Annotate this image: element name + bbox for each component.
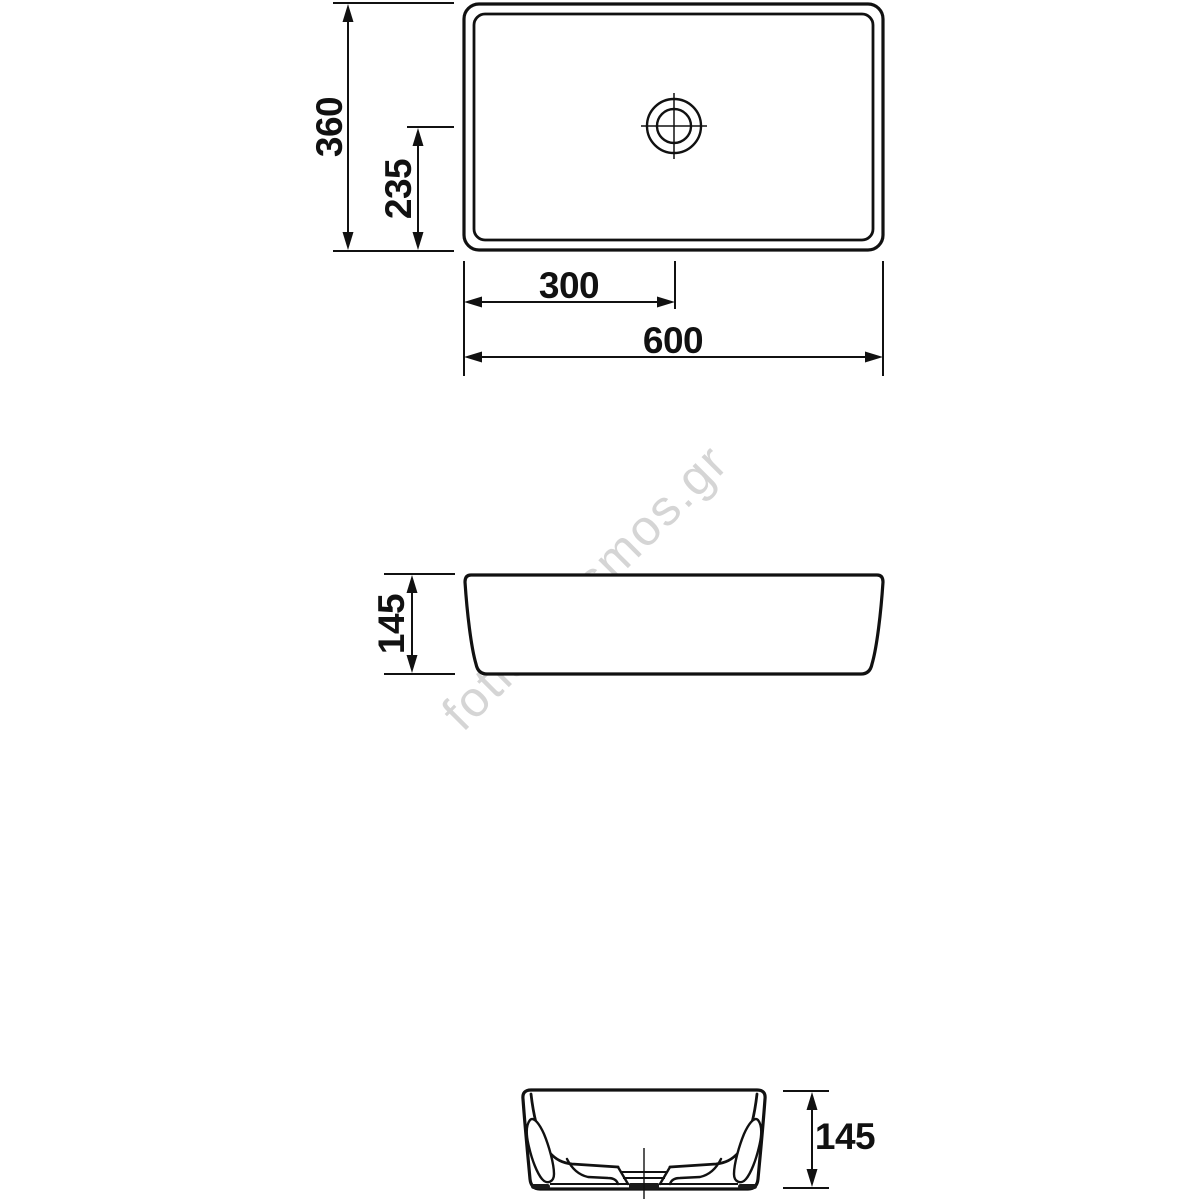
foot-pad-right — [738, 1184, 757, 1189]
dimension-label: 300 — [539, 265, 599, 306]
technical-drawing-canvas: fotistikosmos.gr 360 — [0, 0, 1200, 1200]
technical-drawing-page: fotistikosmos.gr 360 — [0, 0, 1200, 1200]
arrow-right-icon — [657, 297, 675, 308]
arrow-left-icon — [464, 352, 482, 363]
dimension-width-600: 600 — [464, 261, 883, 376]
dimension-label: 235 — [378, 159, 419, 219]
dimension-height-145-side: 145 — [783, 1091, 875, 1188]
arrow-up-icon — [413, 128, 424, 146]
dimension-label: 600 — [643, 320, 703, 361]
dimension-height-145-front: 145 — [371, 574, 455, 674]
dimension-drain-offset-235: 235 — [378, 127, 454, 250]
dimension-label: 145 — [815, 1116, 875, 1157]
arrow-down-icon — [807, 1169, 818, 1187]
side-section-view: 145 — [523, 1090, 875, 1199]
front-view: 145 — [371, 574, 883, 674]
arrow-down-icon — [407, 655, 418, 673]
dimension-label: 145 — [371, 594, 412, 654]
top-view: 360 235 300 — [309, 3, 883, 376]
arrow-up-icon — [407, 575, 418, 593]
dimension-label: 360 — [309, 97, 350, 157]
arrow-down-icon — [343, 232, 354, 250]
arrow-up-icon — [343, 4, 354, 22]
arrow-left-icon — [464, 297, 482, 308]
basin-front-profile — [465, 575, 883, 674]
foot-pad-left — [531, 1184, 550, 1189]
arrow-right-icon — [865, 352, 883, 363]
arrow-down-icon — [413, 232, 424, 250]
arrow-up-icon — [807, 1092, 818, 1110]
